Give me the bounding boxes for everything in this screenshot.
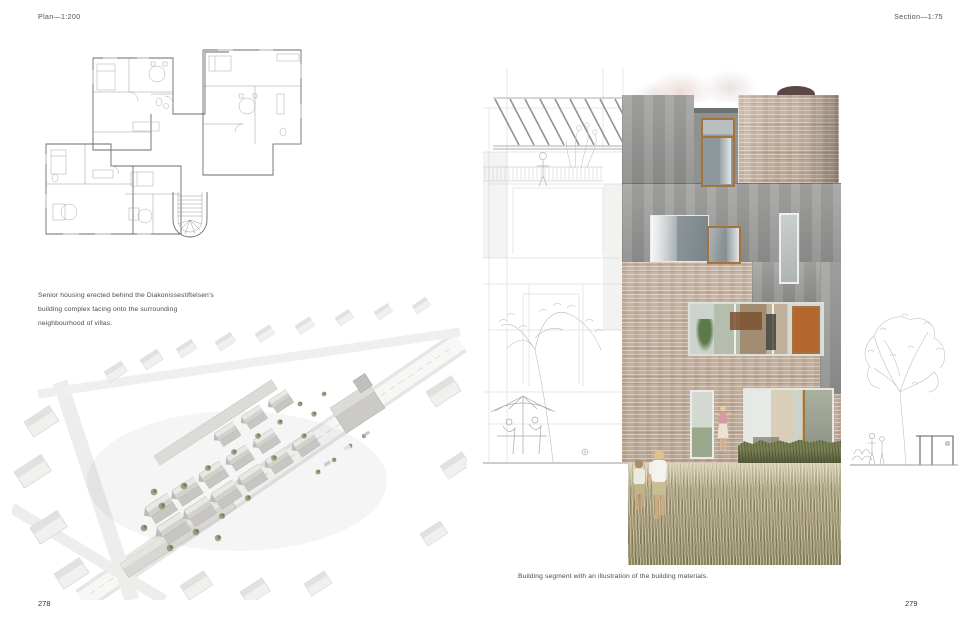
book-spread: Plan—1:200 <box>0 0 960 637</box>
wall-drawing-right <box>916 436 953 465</box>
child-older <box>649 450 667 519</box>
plan-scale-label: Plan—1:200 <box>38 14 81 21</box>
section-lineart-right <box>850 296 958 468</box>
narrow-window <box>779 213 799 284</box>
tree-drawing-left <box>499 303 603 462</box>
interior-fridge <box>766 314 776 350</box>
plan-furniture <box>51 54 299 223</box>
interior-cabinet <box>730 312 762 330</box>
curtain-window <box>650 215 709 262</box>
aerial-illustration <box>12 296 467 600</box>
plan-inner-walls <box>46 58 301 234</box>
plan-window-marks <box>46 50 301 234</box>
tree-drawing-right <box>865 314 945 465</box>
children-figures <box>628 444 676 536</box>
child-younger <box>634 460 646 510</box>
detail-mark <box>582 449 588 455</box>
section-lineart-left <box>483 68 630 470</box>
interior-window-band <box>688 302 824 356</box>
balcony-door <box>701 118 735 187</box>
wood-frame-window <box>707 226 741 264</box>
lower-narrow-window <box>690 390 714 459</box>
interior-orange-door <box>792 306 820 354</box>
page-number-left: 278 <box>38 599 51 608</box>
interior-plant <box>696 319 714 351</box>
figures-drawing-right <box>852 433 884 464</box>
floor-plan-drawing <box>33 44 311 240</box>
elevation-rendering <box>622 42 841 565</box>
brick-tower-shade <box>738 95 838 183</box>
plan-outer-walls <box>46 50 301 237</box>
right-caption: Building segment with an illustration of… <box>518 573 708 580</box>
page-number-right: 279 <box>905 599 918 608</box>
section-scale-label: Section—1:75 <box>894 14 943 21</box>
resident-figure <box>714 404 732 462</box>
zinc-facade-top <box>622 95 694 183</box>
pergola-drawing <box>493 98 630 149</box>
